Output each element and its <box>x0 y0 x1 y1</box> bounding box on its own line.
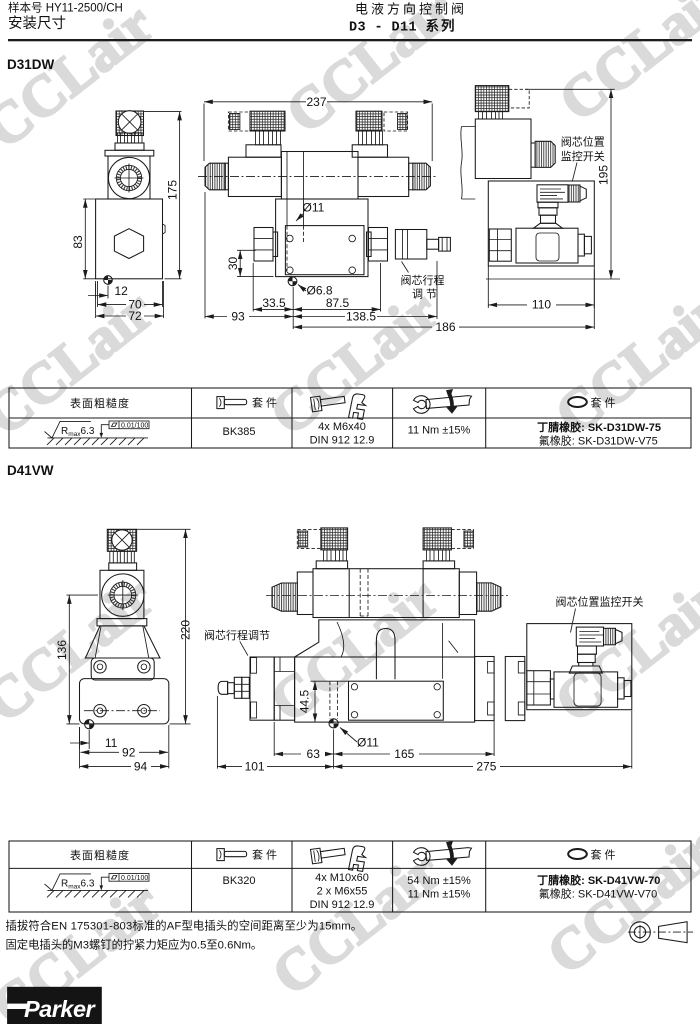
svg-text:套件: 套件 <box>591 397 619 410</box>
svg-text:4x M10x60: 4x M10x60 <box>315 872 369 884</box>
svg-text:D41VW: D41VW <box>7 463 54 478</box>
svg-text:套件: 套件 <box>252 397 280 410</box>
svg-text:30: 30 <box>226 257 240 271</box>
svg-text:阀芯位置监控开关: 阀芯位置监控开关 <box>556 595 644 609</box>
svg-text:Ø11: Ø11 <box>303 201 325 215</box>
svg-text:0.01/100: 0.01/100 <box>121 422 148 429</box>
svg-text:电液方向控制阀: 电液方向控制阀 <box>355 2 467 17</box>
svg-text:监控开关: 监控开关 <box>561 149 605 163</box>
svg-text:2 x M6x55: 2 x M6x55 <box>317 886 368 898</box>
svg-text:样本号 HY11-2500/CH: 样本号 HY11-2500/CH <box>8 1 123 15</box>
svg-text:138.5: 138.5 <box>346 309 376 323</box>
svg-text:插拔符合EN 175301-803标准的AF型电插头的空间距: 插拔符合EN 175301-803标准的AF型电插头的空间距离至少为15mm。 <box>6 919 363 933</box>
svg-text:DIN 912 12.9: DIN 912 12.9 <box>310 435 375 447</box>
svg-text:氟橡胶: SK-D41VW-V70: 氟橡胶: SK-D41VW-V70 <box>539 887 657 901</box>
svg-text:110: 110 <box>532 298 551 312</box>
svg-text:12: 12 <box>115 284 129 298</box>
svg-text:11 Nm ±15%: 11 Nm ±15% <box>408 425 471 437</box>
svg-text:Parker: Parker <box>24 996 97 1022</box>
svg-text:93: 93 <box>231 309 245 323</box>
svg-text:表面粗糙度: 表面粗糙度 <box>70 848 130 862</box>
svg-text:套件: 套件 <box>591 849 619 862</box>
svg-text:63: 63 <box>307 747 321 761</box>
svg-text:D3 - D11 系列: D3 - D11 系列 <box>349 18 457 36</box>
svg-text:阀芯位置: 阀芯位置 <box>561 134 605 148</box>
svg-text:丁腈橡胶: SK-D41VW-70: 丁腈橡胶: SK-D41VW-70 <box>537 873 660 887</box>
svg-text:165: 165 <box>394 747 414 761</box>
svg-text:186: 186 <box>435 320 455 334</box>
svg-text:275: 275 <box>476 760 496 774</box>
svg-text:表面粗糙度: 表面粗糙度 <box>70 396 130 410</box>
svg-text:33.5: 33.5 <box>262 296 286 310</box>
svg-text:11 Nm ±15%: 11 Nm ±15% <box>408 889 471 901</box>
svg-text:4x M6x40: 4x M6x40 <box>318 421 366 433</box>
svg-text:阀芯行程: 阀芯行程 <box>401 273 445 287</box>
svg-text:D31DW: D31DW <box>7 57 55 72</box>
svg-text:87.5: 87.5 <box>326 296 350 310</box>
svg-text:安装尺寸: 安装尺寸 <box>8 15 66 32</box>
svg-text:阀芯行程调节: 阀芯行程调节 <box>204 628 270 642</box>
svg-text:11: 11 <box>105 736 118 750</box>
svg-text:丁腈橡胶: SK-D31DW-75: 丁腈橡胶: SK-D31DW-75 <box>537 420 661 434</box>
svg-text:44.5: 44.5 <box>298 689 312 713</box>
svg-text:136: 136 <box>55 640 69 660</box>
svg-text:83: 83 <box>71 235 85 249</box>
svg-text:BK385: BK385 <box>222 426 255 438</box>
svg-text:DIN 912 12.9: DIN 912 12.9 <box>310 899 375 911</box>
svg-text:195: 195 <box>597 165 611 185</box>
svg-text:Ø11: Ø11 <box>357 736 379 750</box>
svg-text:调 节: 调 节 <box>412 288 437 301</box>
svg-text:BK320: BK320 <box>222 875 255 887</box>
svg-text:72: 72 <box>128 309 142 323</box>
svg-text:237: 237 <box>306 95 326 109</box>
svg-text:220: 220 <box>178 620 192 640</box>
svg-text:0.01/100: 0.01/100 <box>121 875 148 882</box>
svg-text:175: 175 <box>165 180 179 200</box>
svg-text:94: 94 <box>134 759 148 773</box>
svg-text:92: 92 <box>122 745 136 759</box>
svg-text:101: 101 <box>245 760 265 774</box>
svg-text:套件: 套件 <box>252 849 280 862</box>
svg-text:氟橡胶: SK-D31DW-V75: 氟橡胶: SK-D31DW-V75 <box>539 434 658 448</box>
svg-text:54 Nm ±15%: 54 Nm ±15% <box>407 875 471 887</box>
svg-text:固定电插头的M3螺钉的拧紧力矩应为0.5至0.6Nm。: 固定电插头的M3螺钉的拧紧力矩应为0.5至0.6Nm。 <box>6 938 263 952</box>
